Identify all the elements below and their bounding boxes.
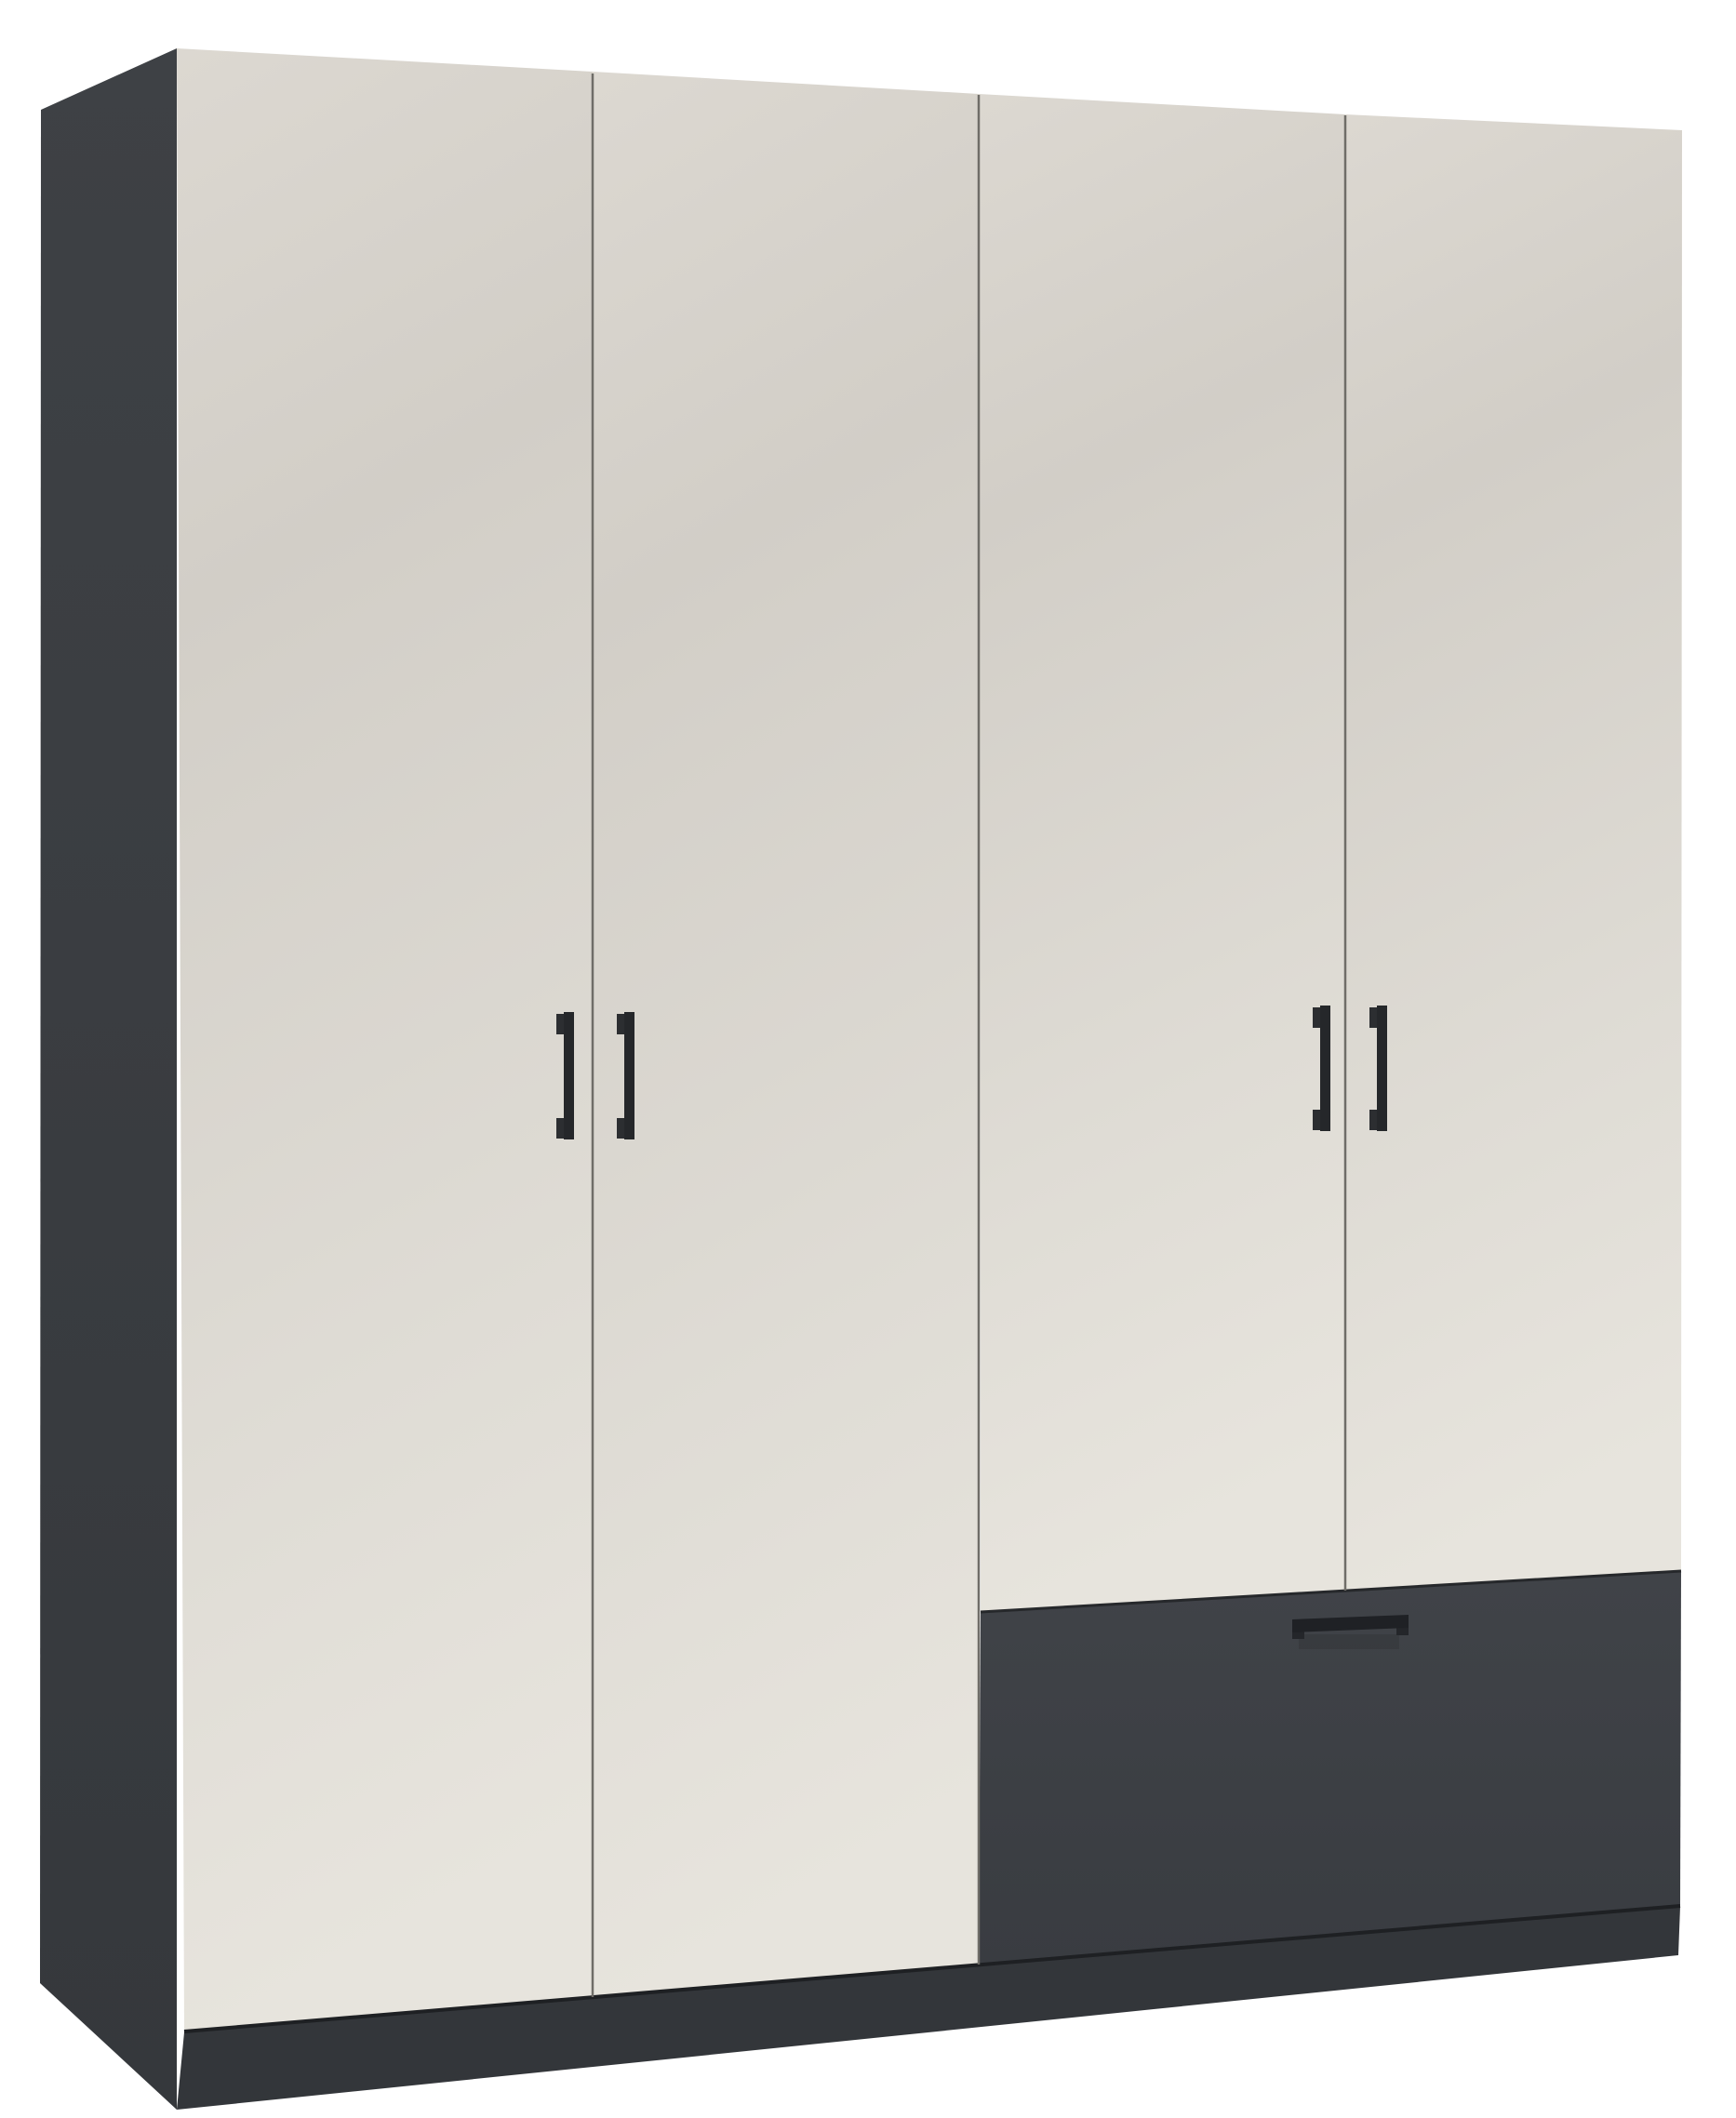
drawer-handle-shadow	[1299, 1634, 1399, 1649]
wardrobe-product-image	[0, 0, 1736, 2118]
wardrobe-svg	[0, 0, 1736, 2118]
door-2-handle-bar	[624, 1012, 634, 1139]
door-1-handle-bar	[564, 1012, 574, 1139]
door-4	[1345, 114, 1682, 1592]
drawer-front	[979, 1572, 1681, 1965]
door-4-handle-bar	[1377, 1006, 1387, 1131]
door-1	[177, 48, 593, 2032]
side-panel-left	[40, 48, 177, 2110]
door-3-handle-bar	[1320, 1006, 1330, 1131]
door-3	[979, 94, 1345, 1613]
door-2	[593, 72, 979, 1998]
